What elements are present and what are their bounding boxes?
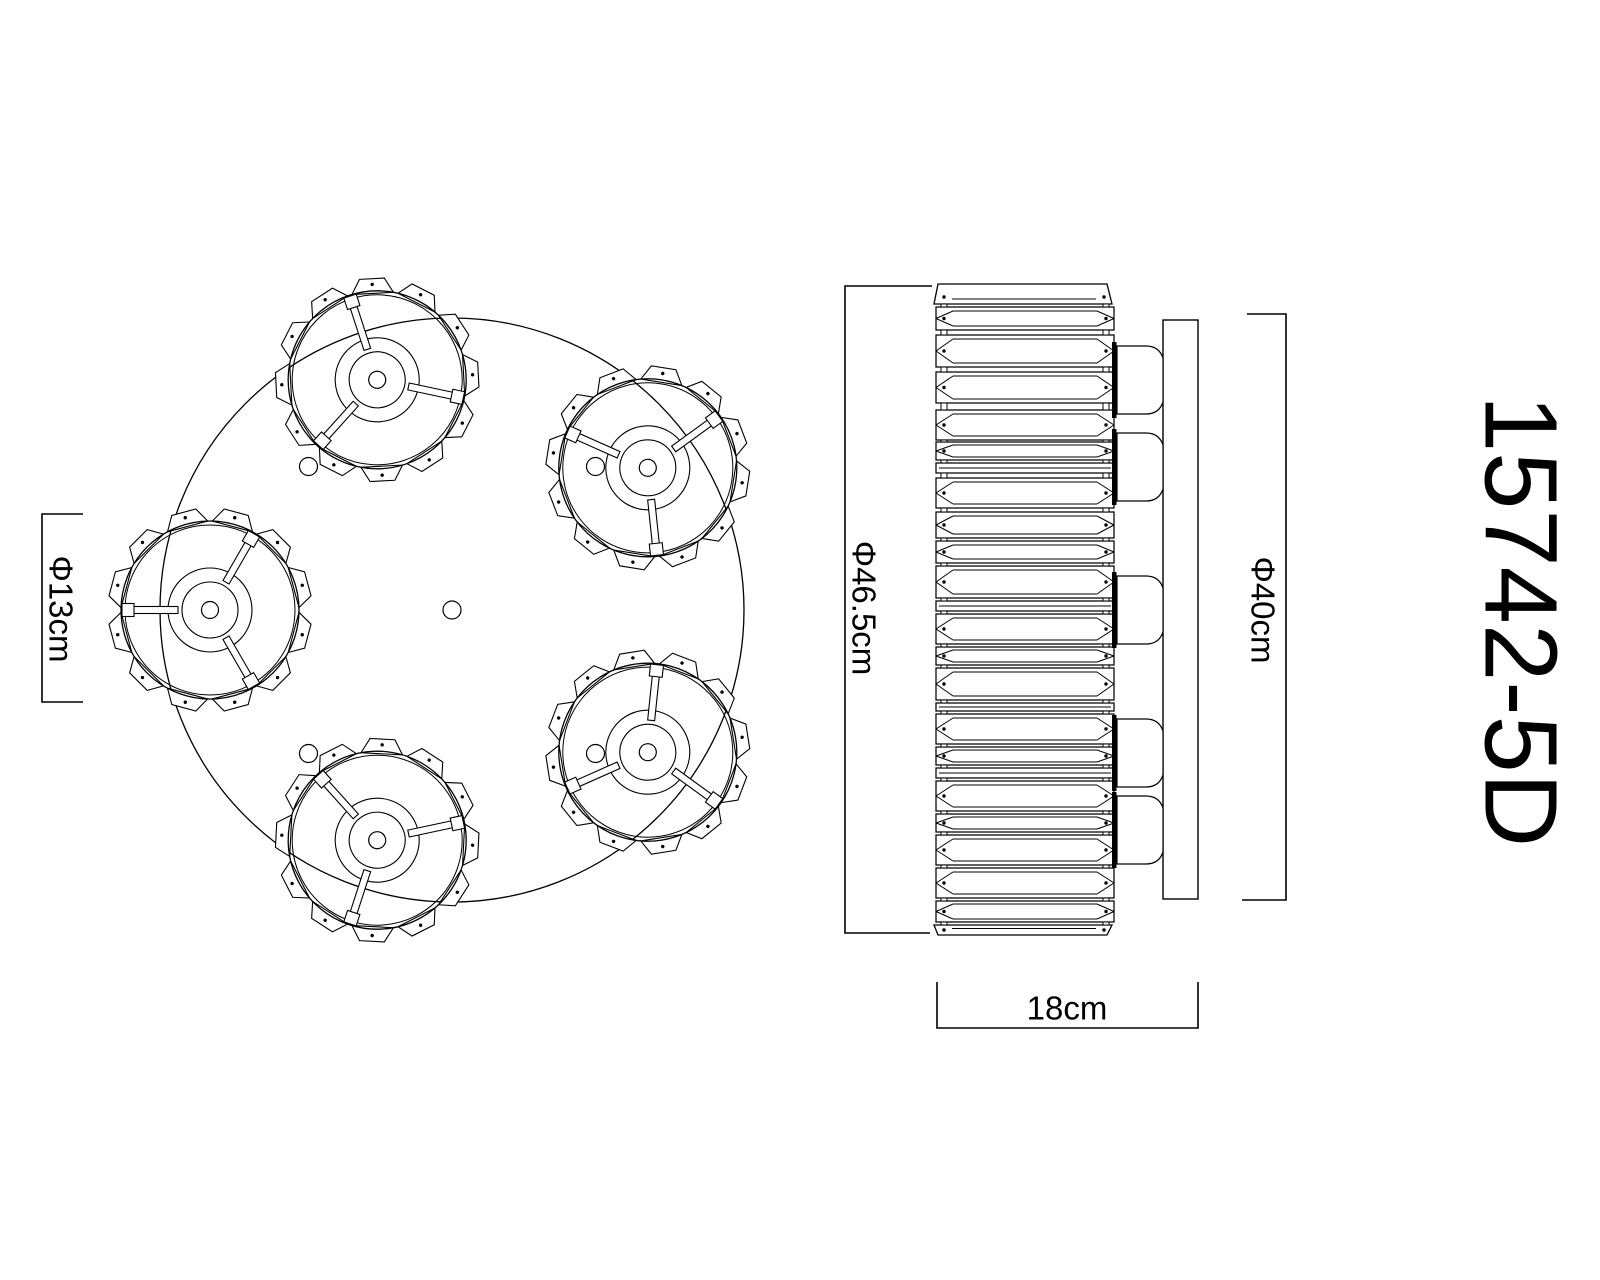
lamp-shade-top-view — [250, 253, 505, 508]
lamp-shade-top-view — [507, 327, 789, 609]
lamp-shade-top-view — [109, 509, 311, 711]
model-number: 15742-5D — [1464, 395, 1579, 847]
dimension-drawing-svg: Φ13cm Φ46.5cm Φ40cm 18cm 15742-5D — [0, 0, 1600, 1280]
label-lamp-shade-diameter: Φ13cm — [43, 555, 80, 662]
side-view-drawing — [934, 284, 1198, 935]
label-mount-plate-diameter: Φ40cm — [1245, 556, 1282, 663]
lamp-shade-top-view — [250, 713, 505, 968]
drawing-canvas: Φ13cm Φ46.5cm Φ40cm 18cm 15742-5D — [0, 0, 1600, 1280]
top-view-drawing — [109, 253, 789, 968]
lamp-shade-top-view — [507, 611, 789, 893]
label-body-diameter: Φ46.5cm — [846, 541, 883, 676]
label-depth: 18cm — [1027, 990, 1108, 1027]
